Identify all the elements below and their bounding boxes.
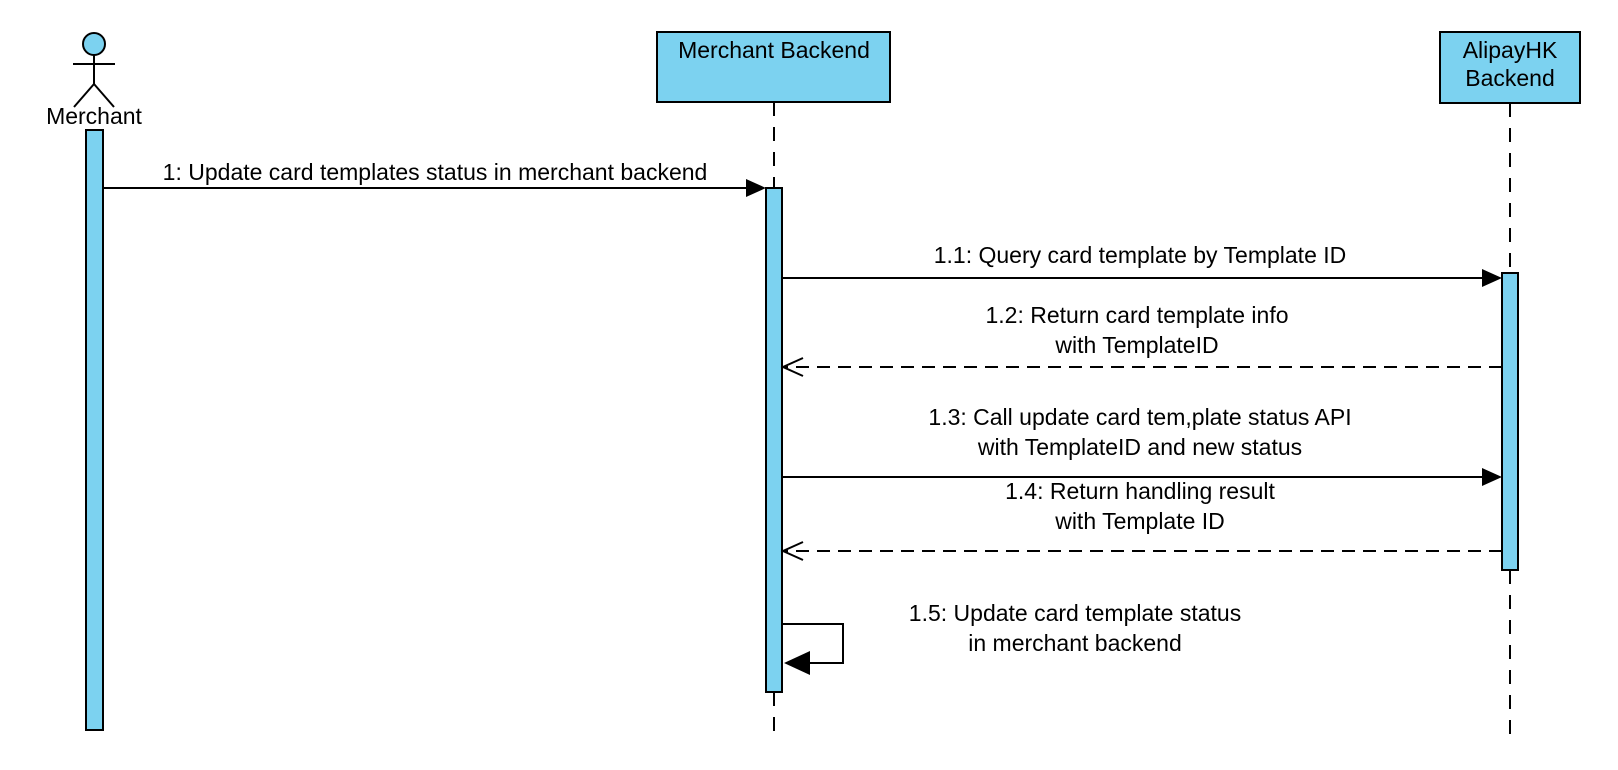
participant-label-alipayhk-backend: AlipayHK Backend [1463, 36, 1558, 92]
message-label-line: with Template ID [1005, 506, 1275, 536]
filled-arrowhead-icon [1482, 468, 1502, 486]
filled-arrowhead-icon [1482, 269, 1502, 287]
merchant-backend-activation-bar[interactable] [766, 188, 782, 692]
participant-label-line: Backend [1463, 64, 1558, 92]
message-1-2-label: 1.2: Return card template info with Temp… [986, 300, 1289, 360]
merchant-activation-bar[interactable] [86, 130, 103, 730]
diagram-shapes [0, 0, 1618, 770]
message-label-line: 1.4: Return handling result [1005, 476, 1275, 506]
sequence-diagram: Merchant Merchant Backend AlipayHK Backe… [0, 0, 1618, 770]
message-1-5-label: 1.5: Update card template status in merc… [909, 598, 1241, 658]
participant-label-merchant-backend: Merchant Backend [678, 36, 870, 64]
message-label-line: 1.3: Call update card tem,plate status A… [928, 402, 1351, 432]
actor-label: Merchant [46, 101, 142, 131]
filled-arrowhead-icon [784, 651, 810, 675]
message-label-line: with TemplateID [986, 330, 1289, 360]
actor-head-icon [83, 33, 105, 55]
message-1-1-label: 1.1: Query card template by Template ID [934, 240, 1347, 270]
filled-arrowhead-icon [746, 179, 766, 197]
message-label-line: 1.5: Update card template status [909, 598, 1241, 628]
message-label-line: in merchant backend [909, 628, 1241, 658]
actor-merchant-figure[interactable] [73, 33, 115, 107]
message-1-3-label: 1.3: Call update card tem,plate status A… [928, 402, 1351, 462]
alipayhk-activation-bar[interactable] [1502, 273, 1518, 570]
message-1-4-label: 1.4: Return handling result with Templat… [1005, 476, 1275, 536]
message-1-5-self-arrow[interactable] [783, 624, 843, 675]
message-label-line: 1.2: Return card template info [986, 300, 1289, 330]
message-1-4-arrow[interactable] [783, 542, 1502, 560]
message-label-line: with TemplateID and new status [928, 432, 1351, 462]
message-1-label: 1: Update card templates status in merch… [163, 157, 708, 187]
message-1-1-arrow[interactable] [782, 269, 1502, 287]
participant-label-line: AlipayHK [1463, 36, 1558, 64]
message-1-2-arrow[interactable] [783, 358, 1502, 376]
